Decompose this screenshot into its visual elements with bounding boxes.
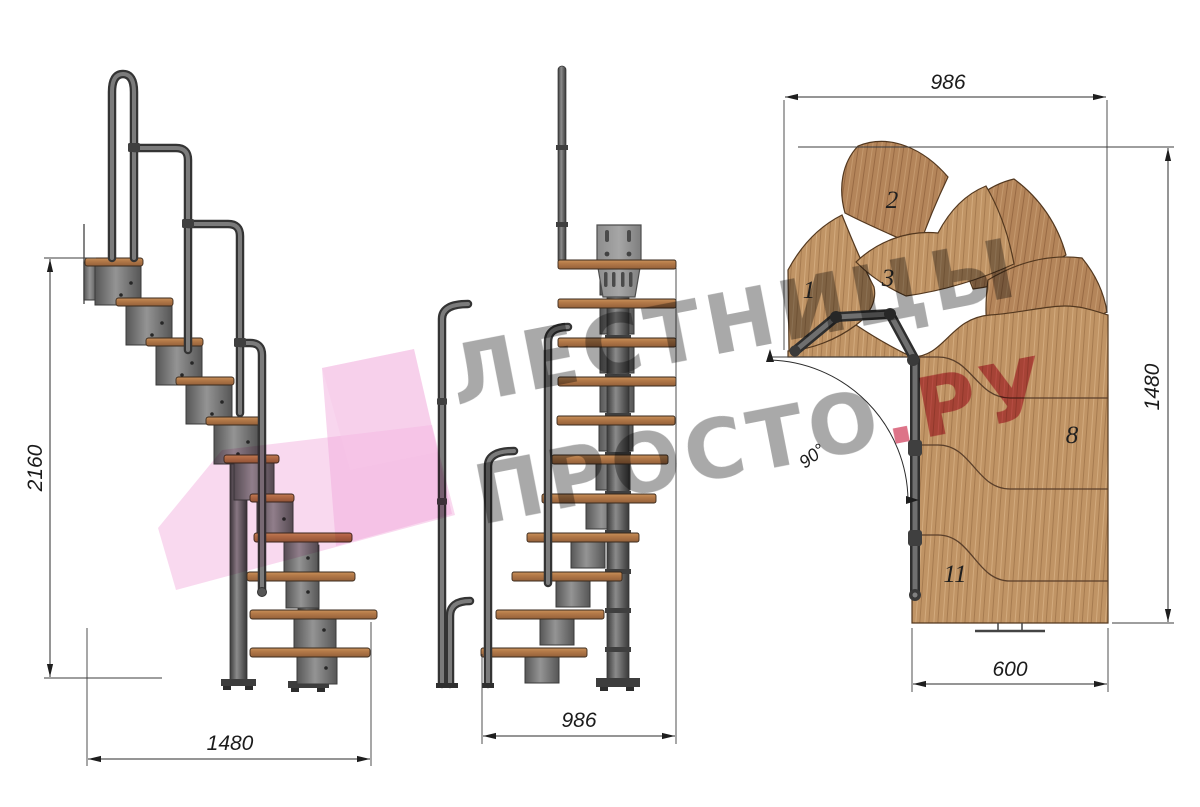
dim-label-front-width: 986 (561, 709, 596, 732)
dim-label-plan-width: 986 (930, 71, 965, 94)
dim-label-run: 1480 (207, 732, 254, 755)
plan-base-plate (975, 623, 1045, 631)
tread (250, 648, 370, 657)
step-number-label: 8 (1066, 422, 1079, 449)
front-handrail-post (556, 66, 568, 264)
step-edge (558, 260, 676, 269)
staircase-technical-drawing: 2160 1480 (0, 0, 1200, 807)
step-edge (481, 648, 587, 657)
dim-label-plan-depth: 1480 (1141, 363, 1164, 410)
tread (176, 377, 234, 385)
drawing-canvas: 2160 1480 (0, 0, 1200, 807)
side-elevation-view: 2160 1480 (24, 74, 377, 766)
tread (250, 610, 377, 619)
dim-label-height: 2160 (24, 444, 47, 492)
step-number-label: 2 (886, 187, 899, 214)
step-number-label: 11 (943, 561, 966, 588)
tread (206, 417, 264, 425)
step-edge (512, 572, 622, 581)
tread (146, 338, 203, 346)
dim-label-flight-width: 600 (992, 658, 1027, 681)
step-edge (496, 610, 604, 619)
tread (116, 298, 173, 306)
dim-plan-flight-width: 600 (912, 628, 1108, 692)
